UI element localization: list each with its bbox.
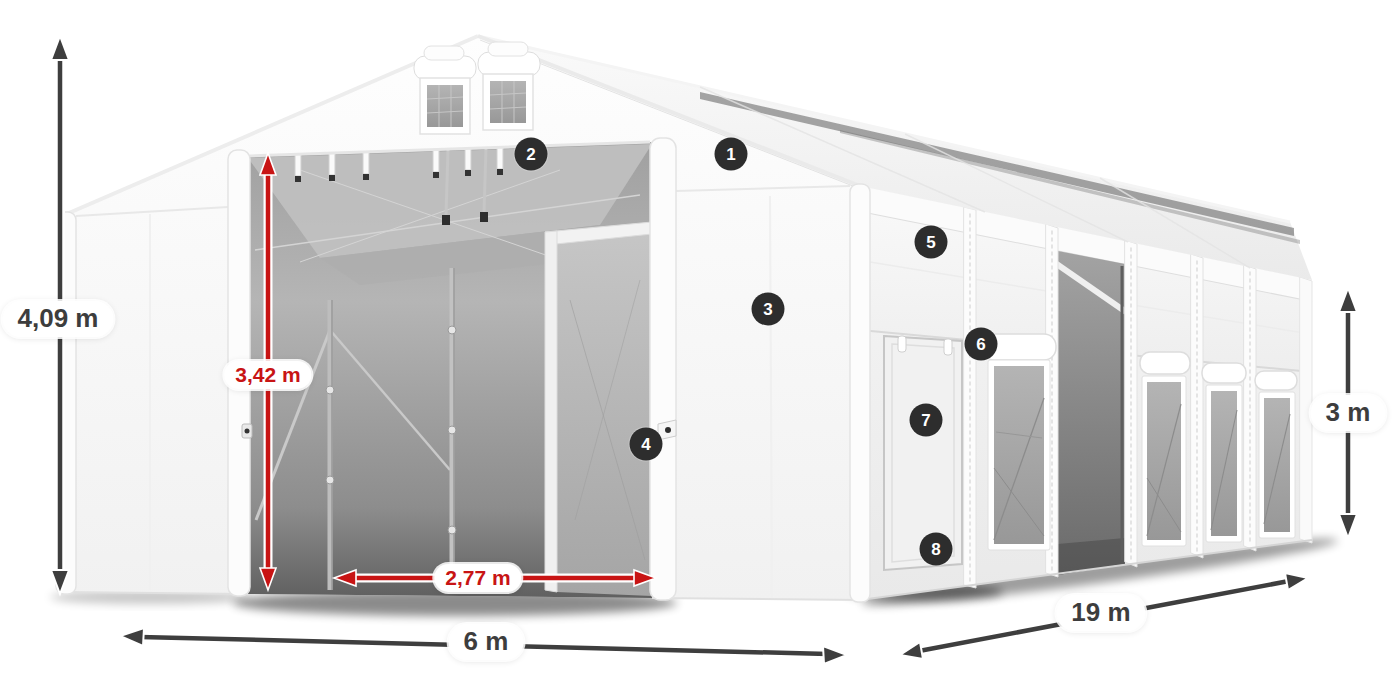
side-height-value: 3 m <box>1326 397 1371 427</box>
side-doorway-open <box>1048 251 1126 575</box>
dimension-label-length: 19 m <box>1056 595 1145 631</box>
door-zip-tab <box>898 336 906 352</box>
callout-6-window-cover[interactable]: 6 <box>965 328 998 361</box>
side-access-door <box>884 336 962 570</box>
callout-7-side-door[interactable]: 7 <box>910 404 943 437</box>
callout-5-side-upper-panel[interactable]: 5 <box>915 226 948 259</box>
callout-4-door-edge[interactable]: 4 <box>630 428 663 461</box>
callout-1-roof[interactable]: 1 <box>715 138 748 171</box>
total-height-value: 4,09 m <box>18 303 99 333</box>
rolled-cover <box>1255 371 1297 390</box>
dimension-label-width: 6 m <box>449 624 524 660</box>
dimension-label-entrance-width: 2,77 m <box>434 564 521 592</box>
side-window-1 <box>982 334 1056 550</box>
side-window-2 <box>1140 352 1190 546</box>
length-value: 19 m <box>1071 597 1130 627</box>
callout-2-gable[interactable]: 2 <box>515 138 548 171</box>
callout-8-side-door-bottom[interactable]: 8 <box>920 533 953 566</box>
dimension-label-side-height: 3 m <box>1311 395 1386 431</box>
rolled-cover <box>1202 363 1246 383</box>
door-zip-tab <box>944 339 952 355</box>
entrance-height-value: 3,42 m <box>235 363 300 386</box>
tent-illustration <box>0 0 1400 700</box>
gable-window-right <box>478 42 540 130</box>
callout-3-front-wall[interactable]: 3 <box>752 293 785 326</box>
dimension-label-total-height: 4,09 m <box>3 301 114 337</box>
right-corner-pole <box>850 184 870 602</box>
rolled-cover <box>1140 352 1190 374</box>
side-window-4 <box>1255 371 1297 538</box>
gable-window-left <box>414 46 476 134</box>
side-window-3 <box>1202 363 1246 542</box>
tent-product-diagram: 4,09 m 3,42 m 2,77 m 6 m 19 m 3 m 1 2 3 … <box>0 0 1400 700</box>
entrance-width-value: 2,77 m <box>445 566 510 589</box>
right-door-jamb <box>650 138 676 600</box>
dimension-label-entrance-height: 3,42 m <box>224 361 311 389</box>
width-value: 6 m <box>464 626 509 656</box>
inner-gate <box>545 222 652 596</box>
